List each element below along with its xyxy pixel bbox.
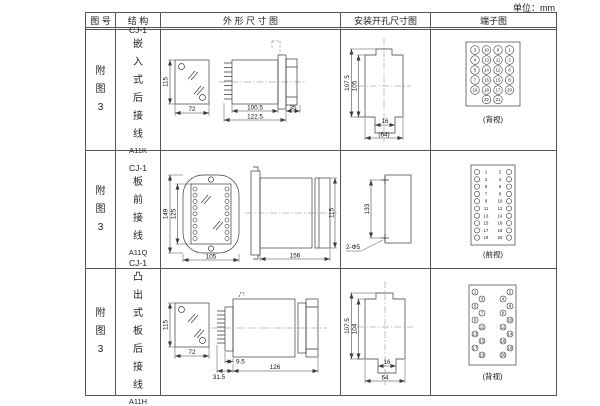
svg-text:17: 17: [484, 228, 489, 233]
dim-pin: 9.5: [225, 352, 245, 366]
svg-text:10: 10: [484, 48, 489, 53]
svg-text:107.5: 107.5: [344, 318, 351, 334]
svg-text:72: 72: [188, 106, 196, 113]
svg-text:14: 14: [484, 68, 489, 73]
svg-text:16: 16: [498, 221, 503, 226]
svg-text:6: 6: [508, 68, 511, 73]
svg-text:1: 1: [474, 289, 477, 294]
dim-install-h2: 104: [352, 299, 366, 359]
row2-outline-cell: 149 125 105: [161, 151, 341, 269]
fig-no-text: 附图3: [94, 183, 107, 237]
dim-depth-1: 100.5: [232, 104, 278, 113]
hole-callout: 2-Φ5: [346, 240, 383, 251]
svg-text:13: 13: [484, 58, 489, 63]
model-text: CJ-1: [129, 258, 147, 268]
view-label: (背视): [483, 114, 503, 124]
svg-text:9: 9: [497, 48, 500, 53]
svg-text:17: 17: [496, 88, 501, 93]
svg-text:16: 16: [381, 118, 389, 125]
dim-depth: 126: [233, 358, 318, 373]
dim-front-width: 105: [183, 254, 239, 263]
svg-text:18: 18: [484, 88, 489, 93]
row2-structure: CJ-1 板前接线 A11Q: [116, 151, 161, 269]
svg-text:19: 19: [480, 352, 485, 357]
svg-text:104: 104: [352, 323, 359, 334]
svg-text:72: 72: [188, 349, 196, 356]
svg-text:2: 2: [509, 289, 512, 294]
row3-terminal-drawing: 1357911131517192468101214161820 (背视): [431, 269, 555, 394]
model-text: CJ-1: [129, 163, 147, 173]
svg-text:3: 3: [485, 177, 488, 182]
dim-front-height: 115: [163, 303, 176, 347]
svg-text:11: 11: [484, 206, 489, 211]
structure-text: 板前接线: [132, 174, 145, 246]
dim-depth: 156: [260, 249, 330, 261]
spec-table: 图 号 结 构 外 形 尺 寸 图 安装开孔尺寸图 端子图 附图3 CJ-1 嵌…: [85, 12, 557, 396]
svg-text:8: 8: [502, 310, 505, 315]
terminal-studs: [193, 187, 229, 241]
terminal-columns: 1357911131517192468101214161820: [474, 169, 511, 240]
svg-text:31.5: 31.5: [213, 374, 226, 381]
header-outline: 外 形 尺 寸 图: [161, 13, 341, 30]
svg-text:7: 7: [481, 310, 484, 315]
svg-text:15: 15: [480, 338, 485, 343]
dim-flange: 35: [286, 105, 300, 114]
dim-install-w1: 16: [378, 359, 396, 366]
svg-text:64: 64: [381, 375, 389, 382]
dim-install-w1: 16: [375, 118, 395, 125]
svg-text:156: 156: [290, 253, 301, 260]
front-view: [175, 60, 209, 104]
svg-text:8: 8: [508, 78, 511, 83]
svg-text:115: 115: [329, 207, 336, 218]
svg-text:3: 3: [481, 296, 484, 301]
row2-fig-no: 附图3: [86, 151, 116, 269]
svg-text:22: 22: [484, 97, 489, 102]
terminal-grid: 31091413112514126716158191817202221: [471, 46, 514, 104]
svg-text:11: 11: [496, 58, 501, 63]
svg-text:126: 126: [270, 364, 281, 371]
svg-text:13: 13: [484, 213, 489, 218]
dim-base: 31.5: [213, 345, 233, 381]
svg-text:20: 20: [507, 88, 512, 93]
fig-no-text: 附图3: [94, 305, 107, 359]
svg-text:15: 15: [484, 221, 489, 226]
row2-outline-drawing: 149 125 105: [161, 151, 340, 268]
row3-outline-cell: 115 72 9.5: [161, 269, 341, 395]
svg-text:8: 8: [499, 191, 502, 196]
dim-install-h1: 107.5: [344, 49, 376, 117]
svg-text:115: 115: [163, 76, 170, 87]
svg-text:16: 16: [484, 78, 489, 83]
view-label: (前视): [483, 249, 503, 259]
svg-text:7: 7: [474, 78, 477, 83]
terminal-staggered: 1357911131517192468101214161820: [472, 289, 513, 358]
row2-install-drawing: 133 2-Φ5: [341, 151, 430, 268]
svg-text:4: 4: [474, 58, 477, 63]
side-view: [245, 167, 337, 259]
svg-text:18: 18: [498, 228, 503, 233]
dim-front-h-inner: 125: [171, 184, 192, 244]
dim-front-width: 72: [175, 347, 209, 359]
row1-structure: CJ-1 嵌入式后接线 A11K: [116, 30, 161, 151]
svg-text:16: 16: [383, 359, 391, 366]
row2-terminal-cell: 1357911131517192468101214161820 (前视): [431, 151, 556, 269]
row1-install-cell: 107.5 105 16 (64): [341, 30, 431, 151]
svg-text:12: 12: [496, 68, 501, 73]
svg-text:122.5: 122.5: [247, 114, 263, 121]
svg-text:10: 10: [498, 199, 503, 204]
row1-terminal-drawing: 31091413112514126716158191817202221 (背视): [431, 30, 555, 150]
row3-fig-no: 附图3: [86, 269, 116, 395]
svg-text:12: 12: [498, 206, 503, 211]
code-text: A11Q: [129, 248, 148, 257]
structure-text: 凸出式板后接线: [132, 269, 145, 395]
structure-text: 嵌入式后接线: [132, 36, 145, 144]
svg-text:3: 3: [474, 48, 477, 53]
svg-text:19: 19: [473, 88, 478, 93]
svg-text:9: 9: [485, 199, 488, 204]
svg-text:35: 35: [289, 105, 297, 112]
model-text: CJ-1: [129, 25, 147, 35]
row1-fig-no: 附图3: [86, 30, 116, 151]
svg-text:5: 5: [474, 68, 477, 73]
dim-install-h1: 107.5: [344, 293, 376, 359]
row2-install-cell: 133 2-Φ5: [341, 151, 431, 269]
row3-outline-drawing: 115 72 9.5: [161, 269, 340, 394]
dim-hole-spacing: 133: [364, 180, 385, 238]
svg-text:115: 115: [163, 319, 170, 330]
svg-text:20: 20: [498, 235, 503, 240]
svg-text:16: 16: [501, 338, 506, 343]
svg-text:105: 105: [352, 80, 359, 91]
svg-text:11: 11: [480, 324, 485, 329]
svg-text:4: 4: [499, 177, 502, 182]
dim-front-width: 72: [175, 104, 209, 116]
row3-install-cell: 107.5 104 16 64: [341, 269, 431, 395]
svg-text:6: 6: [499, 184, 502, 189]
row1-outline-drawing: 115 72 100.5: [161, 30, 340, 150]
svg-text:1: 1: [485, 170, 488, 175]
side-view: [211, 292, 327, 357]
svg-text:7: 7: [485, 191, 488, 196]
svg-text:12: 12: [501, 324, 506, 329]
svg-text:14: 14: [508, 331, 513, 336]
svg-text:20: 20: [501, 352, 506, 357]
side-view: [219, 41, 307, 109]
front-view: [183, 175, 239, 253]
svg-text:6: 6: [509, 303, 512, 308]
svg-text:2-Φ5: 2-Φ5: [346, 244, 361, 251]
fig-no-text: 附图3: [94, 63, 107, 117]
svg-text:(64): (64): [378, 132, 389, 139]
svg-text:133: 133: [364, 203, 371, 214]
svg-text:2: 2: [499, 170, 502, 175]
header-terminal: 端子图: [431, 13, 556, 30]
svg-text:10: 10: [508, 317, 513, 322]
row1-outline-cell: 115 72 100.5: [161, 30, 341, 151]
svg-text:13: 13: [473, 331, 478, 336]
svg-text:149: 149: [163, 208, 170, 219]
row3-terminal-cell: 1357911131517192468101214161820 (背视): [431, 269, 556, 395]
svg-text:2: 2: [508, 58, 511, 63]
svg-text:105: 105: [206, 254, 217, 261]
row1-terminal-cell: 31091413112514126716158191817202221 (背视): [431, 30, 556, 151]
svg-text:14: 14: [498, 213, 503, 218]
svg-text:100.5: 100.5: [247, 105, 263, 112]
svg-text:21: 21: [496, 97, 501, 102]
svg-text:5: 5: [485, 184, 488, 189]
svg-text:125: 125: [171, 208, 178, 219]
svg-text:5: 5: [474, 303, 477, 308]
dim-front-height: 115: [163, 60, 176, 104]
row3-install-drawing: 107.5 104 16 64: [341, 269, 430, 394]
svg-text:17: 17: [473, 345, 478, 350]
svg-text:19: 19: [484, 235, 489, 240]
view-label: (背视): [483, 371, 503, 381]
header-install: 安装开孔尺寸图: [341, 13, 431, 30]
row2-terminal-drawing: 1357911131517192468101214161820 (前视): [431, 151, 555, 268]
svg-text:107.5: 107.5: [344, 75, 351, 91]
svg-text:1: 1: [508, 48, 511, 53]
row1-install-drawing: 107.5 105 16 (64): [341, 30, 430, 150]
svg-text:18: 18: [508, 345, 513, 350]
row3-structure: CJ-1 凸出式板后接线 A11H: [116, 269, 161, 395]
svg-text:9.5: 9.5: [236, 359, 245, 366]
header-fig-no: 图 号: [86, 13, 116, 30]
code-text: A11H: [129, 397, 147, 406]
svg-text:9: 9: [474, 317, 477, 322]
front-view: [175, 303, 209, 347]
svg-text:4: 4: [502, 296, 505, 301]
svg-text:15: 15: [496, 78, 501, 83]
